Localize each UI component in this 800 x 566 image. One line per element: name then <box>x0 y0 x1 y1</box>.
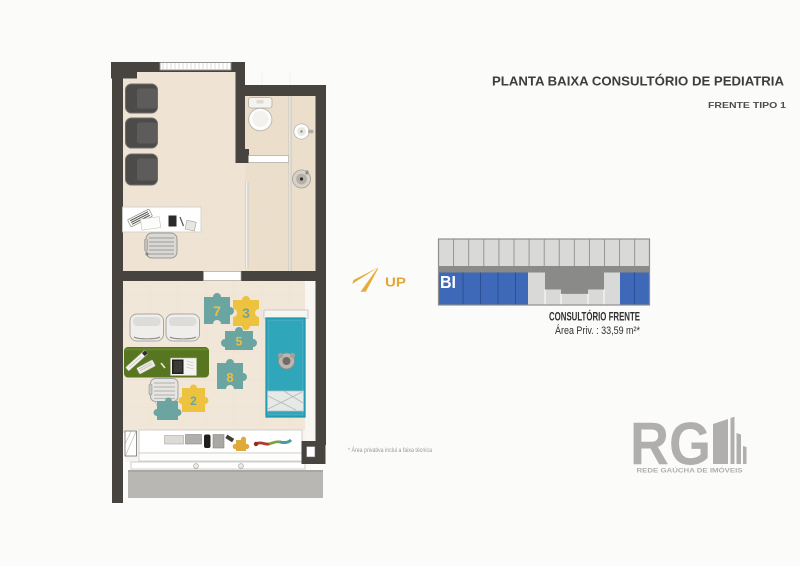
svg-text:3: 3 <box>242 305 250 321</box>
svg-text:5: 5 <box>236 335 243 349</box>
svg-text:7: 7 <box>213 303 221 319</box>
svg-text:* Área privativa inclui a faix: * Área privativa inclui a faixa técnica <box>348 447 433 454</box>
svg-text:UP: UP <box>385 276 406 290</box>
svg-text:CONSULTÓRIO FRENTE: CONSULTÓRIO FRENTE <box>549 311 640 324</box>
svg-text:REDE GAÚCHA DE IMÓVEIS: REDE GAÚCHA DE IMÓVEIS <box>637 466 744 475</box>
svg-text:8: 8 <box>226 370 233 385</box>
svg-text:Área Priv. : 33,59 m²*: Área Priv. : 33,59 m²* <box>555 324 641 337</box>
svg-text:PLANTA BAIXA CONSULTÓRIO DE PE: PLANTA BAIXA CONSULTÓRIO DE PEDIATRIA <box>492 73 784 88</box>
svg-text:2: 2 <box>190 394 197 408</box>
svg-text:BI: BI <box>440 272 456 292</box>
svg-text:FRENTE TIPO 1: FRENTE TIPO 1 <box>708 101 787 110</box>
